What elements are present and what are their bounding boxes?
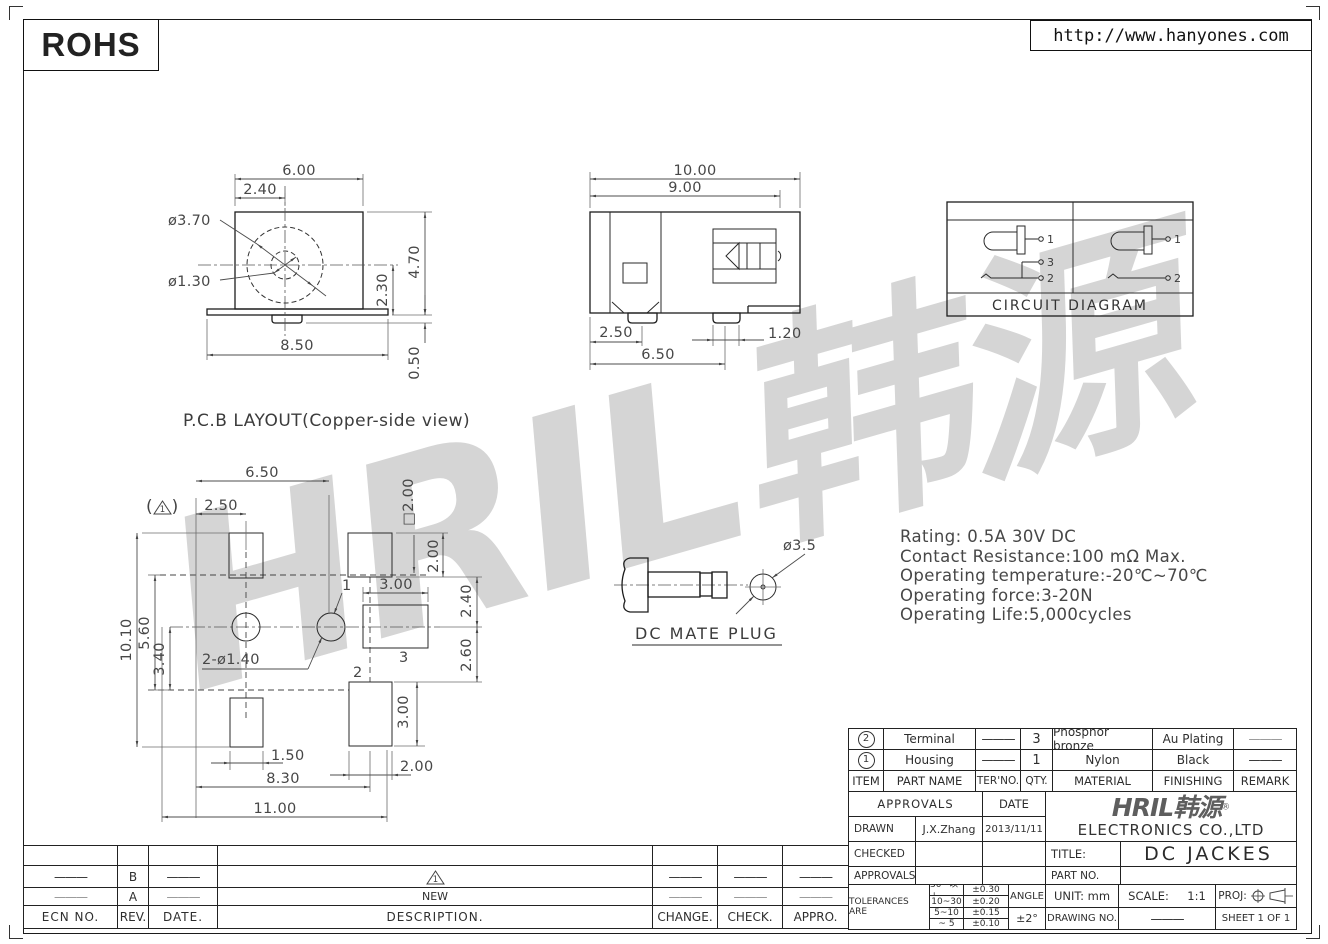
approvals-label: APPROVALS <box>848 866 916 885</box>
pcb-layout-drawing: 6.50 2.50 □2.00 3.00 2.00 2.40 2.60 3.00 <box>118 440 512 830</box>
drawn-by: J.X.Zhang <box>923 823 976 836</box>
rev-b-change: ——— <box>652 865 718 888</box>
header-label: CHECK. <box>727 910 772 924</box>
dim-2.50: 2.50 <box>204 498 238 514</box>
part-name: Terminal <box>904 732 955 746</box>
unit-cell: UNIT: mm <box>1045 884 1119 908</box>
header-label: TER'NO. <box>977 775 1019 787</box>
spec-rating: Rating: 0.5A 30V DC <box>900 527 1208 547</box>
dim-1.20: 1.20 <box>768 326 802 342</box>
drawing-title: DC JACKES <box>1120 841 1297 867</box>
pad-label-2: 2 <box>353 665 363 681</box>
sheet-value: SHEET 1 OF 1 <box>1222 913 1291 924</box>
angle-tolerance: ±2° <box>1016 912 1038 925</box>
parts-row2-material: Phosphor bronze <box>1052 728 1153 750</box>
parts-row2-qty: 3 <box>1020 728 1053 750</box>
rev-letter: B <box>129 870 137 884</box>
pin-label-2: 2 <box>1174 272 1181 285</box>
checked-label: CHECKED <box>848 841 916 867</box>
field-label: TITLE: <box>1051 847 1086 861</box>
field-label: PROJ: <box>1218 890 1247 902</box>
dash-value: ——— <box>669 870 702 884</box>
dim-0.50: 0.50 <box>407 346 423 380</box>
field-label: TOLERANCES ARE <box>849 897 929 917</box>
unit-value: UNIT: mm <box>1054 889 1110 903</box>
parts-row2-item: 2 <box>848 728 884 750</box>
dim-dia-3.5: ø3.5 <box>783 538 816 554</box>
rev-header-ecn: ECN NO. <box>23 905 118 929</box>
approvals-name <box>915 866 983 885</box>
rev-header-change: CHANGE. <box>652 905 718 929</box>
dim-3.40: 3.40 <box>152 642 168 676</box>
corner-tick <box>9 6 23 20</box>
dim-9.00: 9.00 <box>668 180 702 196</box>
finishing-value: Black <box>1177 753 1209 767</box>
field-label: SCALE: <box>1128 889 1169 903</box>
tolerance: ±0.10 <box>972 919 1000 929</box>
website-url: http://www.hanyones.com <box>1053 26 1288 46</box>
rev-a-desc: NEW <box>217 887 653 906</box>
header-label: QTY. <box>1025 775 1047 787</box>
dim-dia-1.30: ø1.30 <box>168 274 211 290</box>
drawing-no-label: DRAWING NO. <box>1045 907 1119 930</box>
corner-tick <box>9 925 23 939</box>
title-label: TITLE: <box>1045 841 1121 867</box>
dash-value: ——— <box>982 732 1015 746</box>
rev-a-rev: A <box>117 887 149 906</box>
revision-triangle-icon: 1 <box>426 869 445 885</box>
dim-2.40: 2.40 <box>243 182 277 198</box>
pcb-layout-title-text: P.C.B LAYOUT(Copper-side view) <box>183 411 470 431</box>
corner-tick <box>1306 925 1320 939</box>
company-logo: HRIL韩源® <box>1112 795 1230 820</box>
rev-b-appro: ——— <box>782 865 849 888</box>
spec-operating-force: Operating force:3-20N <box>900 586 1208 606</box>
sheet-cell: SHEET 1 OF 1 <box>1215 907 1297 930</box>
corner-tick <box>1306 6 1320 20</box>
rev-a-change: ——— <box>652 887 718 906</box>
dim-2.00-right: 2.00 <box>426 539 442 573</box>
dash-value: ——— <box>669 890 702 904</box>
row-label: APPROVALS <box>854 870 915 882</box>
rev-header-check: CHECK. <box>717 905 783 929</box>
dash-value: ——— <box>734 870 767 884</box>
tolerance: ±0.20 <box>972 897 1000 907</box>
drawing-no-value: ——— <box>1118 907 1216 930</box>
approvals-header: APPROVALS <box>848 791 983 817</box>
parts-header-material: MATERIAL <box>1052 770 1153 792</box>
qty-value: 3 <box>1032 732 1040 747</box>
tol-range-4: ~ 5 <box>929 918 964 930</box>
header-label: CHANGE. <box>657 910 712 924</box>
scale-cell: SCALE: 1:1 <box>1118 884 1216 908</box>
company-logo-text: HRIL韩源 <box>1112 793 1221 822</box>
dash-value: ——— <box>734 890 767 904</box>
header-label: APPROVALS <box>877 797 953 811</box>
rev-empty-rev <box>117 845 149 866</box>
parts-header-terno: TER'NO. <box>975 770 1021 792</box>
material-value: Nylon <box>1085 753 1119 767</box>
rev-empty-date <box>148 845 218 866</box>
pad-label-1: 1 <box>342 578 352 594</box>
dim-4.70: 4.70 <box>407 245 423 279</box>
rev-empty-desc <box>217 845 653 866</box>
first-angle-projection-icon <box>1250 887 1294 905</box>
parts-row2-remark: ——— <box>1233 728 1297 750</box>
dash-value: ——— <box>54 870 87 884</box>
row-label: CHECKED <box>854 848 905 860</box>
parts-header-remark: REMARK <box>1233 770 1297 792</box>
checked-name <box>915 841 983 867</box>
rev-a-date: ——— <box>148 887 218 906</box>
spec-text-block: Rating: 0.5A 30V DC Contact Resistance:1… <box>900 527 1208 625</box>
revision-number: 1 <box>432 875 437 885</box>
dim-6.50: 6.50 <box>245 465 279 481</box>
drawing-sheet: HRIL韩源 ROHS http://www.hanyones.com 6.00 <box>0 0 1328 944</box>
dash-value: ——— <box>1249 753 1282 767</box>
tolerance: ±0.30 <box>972 885 1000 895</box>
pad-label-3: 3 <box>399 650 409 666</box>
dash-value: ——— <box>167 890 200 904</box>
dim-10.10: 10.10 <box>119 618 135 661</box>
drawn-label: DRAWN <box>848 816 916 842</box>
dim-2.00-bottom: 2.00 <box>400 759 434 775</box>
header-label: REMARK <box>1241 774 1290 788</box>
parts-row2-terno: ——— <box>975 728 1021 750</box>
dash-value: ——— <box>167 870 200 884</box>
tolerance: ±0.15 <box>972 908 1000 918</box>
dash-value: ——— <box>54 890 87 904</box>
header-label: APPRO. <box>794 910 838 924</box>
dim-2-dia-1.40: 2-ø1.40 <box>202 652 260 668</box>
rev-a-check: ——— <box>717 887 783 906</box>
company-cell: HRIL韩源® ELECTRONICS CO.,LTD <box>1045 791 1297 842</box>
company-name: ELECTRONICS CO.,LTD <box>1078 821 1265 839</box>
header-label: DATE <box>999 797 1029 811</box>
circled-2-icon: 2 <box>858 731 875 748</box>
dim-8.50: 8.50 <box>280 338 314 354</box>
rev-empty-ecn <box>23 845 118 866</box>
part-no-label: PART NO. <box>1045 866 1121 885</box>
part-name: Housing <box>905 753 954 767</box>
dash-value: ——— <box>1151 912 1184 926</box>
rev-b-ecn: ——— <box>23 865 118 888</box>
checked-date <box>982 841 1046 867</box>
pin-label-3: 3 <box>1047 256 1054 269</box>
rev-header-appro: APPRO. <box>782 905 849 929</box>
parts-row1-item: 1 <box>848 749 884 771</box>
dc-mate-plug-drawing: ø3.5 DC MATE PLUG <box>608 533 828 663</box>
field-label: ANGLE <box>1010 891 1044 902</box>
header-label: FINISHING <box>1164 774 1223 788</box>
rev-header-desc: DESCRIPTION. <box>217 905 653 929</box>
header-label: ITEM <box>852 774 880 788</box>
front-view-drawing: 6.00 2.40 ø3.70 ø1.30 4.70 2.30 8.50 0.5… <box>140 148 480 393</box>
date-header: DATE <box>982 791 1046 817</box>
rev-a-appro: ——— <box>782 887 849 906</box>
angle-value: ±2° <box>1008 907 1046 930</box>
rev-header-date: DATE. <box>148 905 218 929</box>
dash-value: ——— <box>799 870 832 884</box>
approvals-date <box>982 866 1046 885</box>
rev-b-date: ——— <box>148 865 218 888</box>
rev-letter: A <box>129 890 137 904</box>
dim-square-2.00: □2.00 <box>401 478 417 526</box>
rev-empty-check <box>717 845 783 866</box>
parts-header-finishing: FINISHING <box>1152 770 1234 792</box>
rohs-text: ROHS <box>41 26 140 64</box>
range: ~ 5 <box>938 919 954 929</box>
spec-operating-life: Operating Life:5,000cycles <box>900 605 1208 625</box>
dim-dia-3.70: ø3.70 <box>168 213 211 229</box>
dim-6.00: 6.00 <box>282 163 316 179</box>
parts-row2-finishing: Au Plating <box>1152 728 1234 750</box>
parts-row1-name: Housing <box>883 749 976 771</box>
spec-operating-temperature: Operating temperature:-20℃~70℃ <box>900 566 1208 586</box>
dim-1.50: 1.50 <box>271 748 305 764</box>
dim-10.00: 10.00 <box>673 163 716 179</box>
rev-empty-appro <box>782 845 849 866</box>
header-label: PART NAME <box>897 774 963 788</box>
rev-a-ecn: ——— <box>23 887 118 906</box>
dim-5.60: 5.60 <box>137 616 153 650</box>
side-view-drawing: 10.00 9.00 2.50 6.50 1.20 <box>568 148 830 388</box>
finishing-value: Au Plating <box>1163 732 1224 746</box>
field-label: PART NO. <box>1051 870 1099 882</box>
parts-header-item: ITEM <box>848 770 884 792</box>
field-label: DRAWING NO. <box>1047 913 1117 924</box>
rev-b-rev: B <box>117 865 149 888</box>
header-label: ECN NO. <box>42 910 100 924</box>
pcb-layout-title: P.C.B LAYOUT(Copper-side view) <box>183 411 470 431</box>
tol-val-4: ±0.10 <box>963 918 1009 930</box>
dim-8.30: 8.30 <box>266 771 300 787</box>
rev-b-desc: 1 <box>217 865 653 888</box>
header-label: DESCRIPTION. <box>386 910 483 924</box>
parts-row1-material: Nylon <box>1052 749 1153 771</box>
pin-label-2: 2 <box>1047 272 1054 285</box>
rev-header-rev: REV. <box>117 905 149 929</box>
dash-value: ——— <box>982 753 1015 767</box>
plug-caption: DC MATE PLUG <box>635 624 778 643</box>
part-no-value <box>1120 866 1297 885</box>
parts-header-name: PART NAME <box>883 770 976 792</box>
parts-row1-remark: ——— <box>1233 749 1297 771</box>
circled-1-icon: 1 <box>858 752 875 769</box>
drawn-name: J.X.Zhang <box>915 816 983 842</box>
dim-3.00-top: 3.00 <box>379 577 413 593</box>
dim-6.50: 6.50 <box>641 347 675 363</box>
material-value: Phosphor bronze <box>1053 728 1152 750</box>
dash-value: ——— <box>1249 732 1282 746</box>
drawn-date: 2013/11/11 <box>982 816 1046 842</box>
rohs-logo: ROHS <box>23 19 159 71</box>
pin-label-1: 1 <box>1174 233 1181 246</box>
dim-2.40: 2.40 <box>459 584 475 618</box>
parts-header-qty: QTY. <box>1020 770 1053 792</box>
registered-mark: ® <box>1221 802 1230 812</box>
website-url-box: http://www.hanyones.com <box>1030 20 1312 51</box>
qty-value: 1 <box>1032 753 1040 768</box>
parts-row1-qty: 1 <box>1020 749 1053 771</box>
rev-b-check: ——— <box>717 865 783 888</box>
dim-2.60: 2.60 <box>459 638 475 672</box>
header-label: REV. <box>120 910 146 924</box>
parts-row2-name: Terminal <box>883 728 976 750</box>
range: 5~10 <box>934 908 959 918</box>
parts-row1-terno: ——— <box>975 749 1021 771</box>
parts-row1-finishing: Black <box>1152 749 1234 771</box>
pin-label-1: 1 <box>1047 233 1054 246</box>
proj-cell: PROJ: <box>1215 884 1297 908</box>
circuit-caption: CIRCUIT DIAGRAM <box>992 298 1148 314</box>
date-value: 2013/11/11 <box>985 824 1043 835</box>
tolerances-label: TOLERANCES ARE <box>848 884 930 930</box>
drawing-title-text: DC JACKES <box>1144 843 1273 865</box>
angle-label: ANGLE <box>1008 884 1046 908</box>
scale-value: 1:1 <box>1187 889 1206 903</box>
range: 10~30 <box>931 897 961 907</box>
dash-value: ——— <box>799 890 832 904</box>
dim-2.50: 2.50 <box>599 325 633 341</box>
row-label: DRAWN <box>854 823 894 835</box>
header-label: MATERIAL <box>1074 774 1131 788</box>
header-label: DATE. <box>163 910 203 924</box>
circuit-diagram: 1 3 2 1 2 CIRCUIT DIAGRAM <box>945 198 1197 320</box>
dim-2.30: 2.30 <box>375 273 391 307</box>
dim-3.00-bottom: 3.00 <box>396 695 412 729</box>
description-value: NEW <box>422 890 448 903</box>
spec-contact-resistance: Contact Resistance:100 mΩ Max. <box>900 547 1208 567</box>
rev-empty-change <box>652 845 718 866</box>
dim-11.00: 11.00 <box>253 801 296 817</box>
